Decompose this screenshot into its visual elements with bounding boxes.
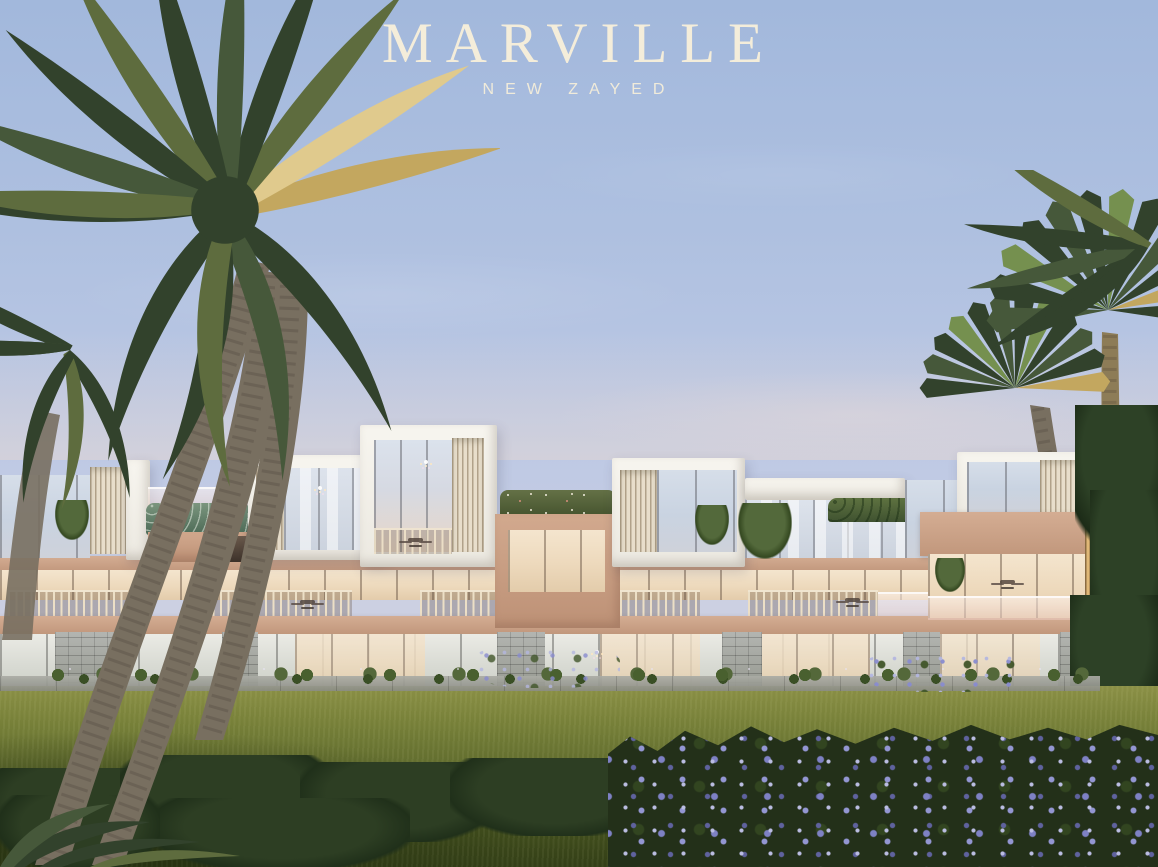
- terrace-tree: [738, 503, 792, 559]
- box-d-balustrade: [928, 596, 1085, 620]
- balcony-plant: [695, 505, 729, 545]
- mid-right-fascia: [745, 478, 905, 500]
- project-logo: MARVILLE NEW ZAYED: [0, 14, 1158, 99]
- logo-title: MARVILLE: [0, 14, 1158, 74]
- corner-plant: [0, 800, 260, 867]
- left-palm-tree: [0, 0, 500, 867]
- balcony-plant: [935, 558, 965, 592]
- tan-box-glazing: [508, 530, 605, 592]
- roof-planter-flowers: [500, 490, 616, 516]
- box-e-glazing: [967, 462, 1040, 512]
- violet-flower-bed: [608, 722, 1158, 867]
- balcony-furniture: [845, 598, 860, 602]
- box-c-louvers: [620, 470, 657, 552]
- flower-patch: [860, 650, 1030, 692]
- logo-subtitle: NEW ZAYED: [0, 81, 1158, 99]
- balcony-furniture: [1000, 580, 1015, 584]
- palm-crown-lower: [0, 264, 163, 510]
- marville-architectural-render: MARVILLE NEW ZAYED: [0, 0, 1158, 867]
- beige-box-d-fascia: [920, 512, 1097, 556]
